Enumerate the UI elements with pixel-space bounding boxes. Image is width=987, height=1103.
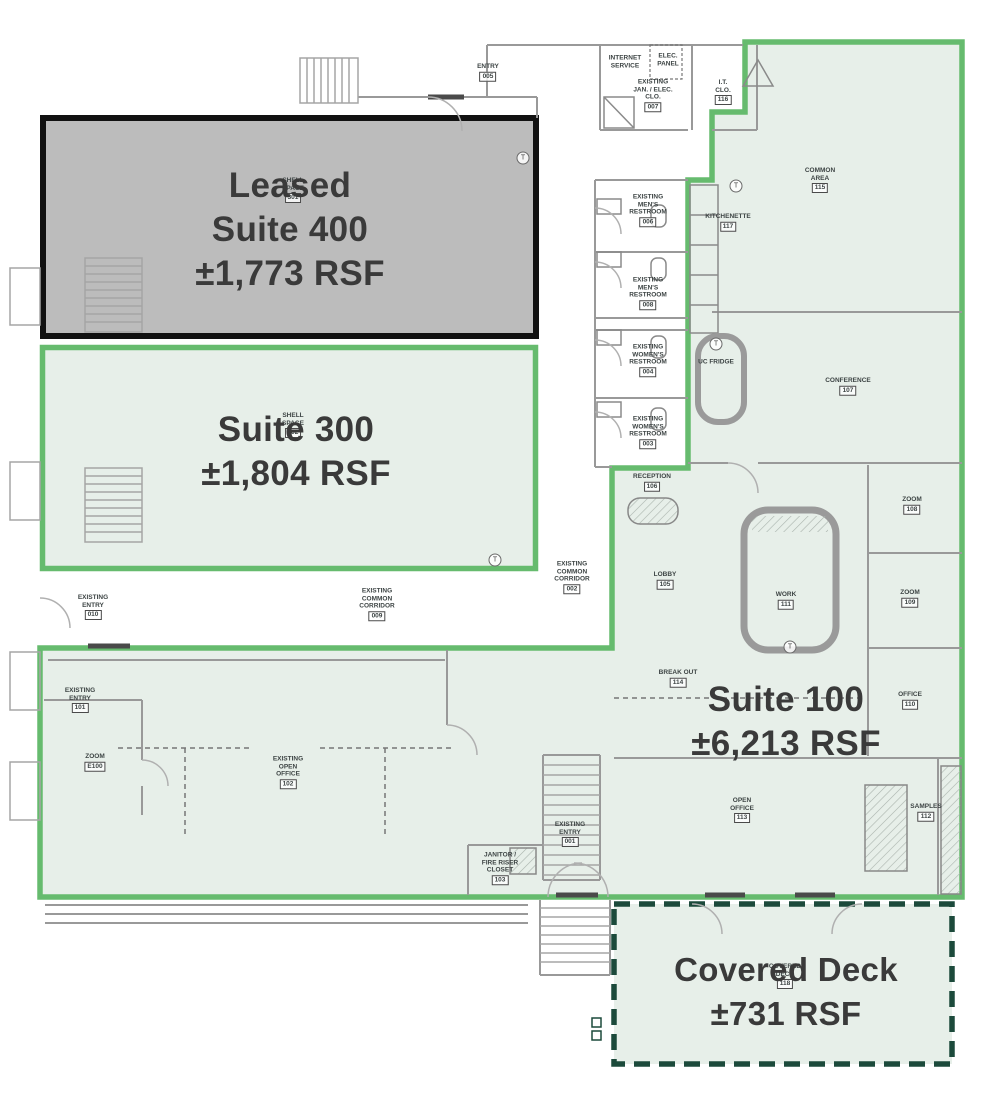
room-number: 006	[640, 217, 657, 227]
room-name: OPEN	[273, 763, 303, 771]
suite-400-status: Leased	[195, 164, 385, 208]
room-number: 002	[564, 584, 581, 594]
room-number: 115	[812, 183, 829, 193]
room-label: ZOOM109	[900, 589, 920, 608]
room-number: 005	[480, 71, 497, 81]
room-name: KITCHENETTE	[705, 213, 751, 221]
room-name: RESTROOM	[629, 358, 667, 366]
room-number: 107	[840, 385, 857, 395]
room-number: 102	[280, 779, 297, 789]
room-name: CLO.	[715, 87, 732, 95]
room-name: CORRIDOR	[554, 575, 589, 583]
room-name: ENTRY	[65, 695, 95, 703]
room-name: CLO.	[633, 93, 672, 101]
room-label: COMMONAREA115	[805, 167, 835, 193]
room-name: MEN'S	[629, 201, 667, 209]
room-name: CORRIDOR	[359, 602, 394, 610]
room-label: EXISTINGENTRY010	[78, 594, 108, 620]
suite-100-name: Suite 100	[691, 678, 881, 722]
room-name: ENTRY	[555, 829, 585, 837]
room-label: EXISTINGMEN'SRESTROOM008	[629, 276, 667, 310]
room-name: ZOOM	[902, 496, 922, 504]
room-name: CONFERENCE	[825, 377, 871, 385]
suite-100-label: Suite 100 ±6,213 RSF	[691, 678, 881, 766]
room-name: EXISTING	[629, 343, 667, 351]
room-label: ELEC.PANEL	[657, 53, 679, 68]
room-number: 114	[670, 677, 687, 687]
room-label: WORK111	[776, 591, 797, 610]
room-name: OFFICE	[898, 691, 922, 699]
room-name: I.T.	[715, 79, 732, 87]
room-name: LOBBY	[654, 571, 677, 579]
room-name: EXISTING	[554, 560, 589, 568]
room-label: CONFERENCE107	[825, 377, 871, 396]
room-label: EXISTINGOPENOFFICE102	[273, 755, 303, 789]
room-name: RESTROOM	[629, 208, 667, 216]
room-name: WOMEN'S	[629, 351, 667, 359]
room-name: WORK	[776, 591, 797, 599]
room-name: EXISTING	[555, 821, 585, 829]
room-name: COMMON	[359, 595, 394, 603]
room-number: 101	[72, 703, 89, 713]
room-number: 004	[640, 367, 657, 377]
room-name: OPEN	[730, 797, 754, 805]
room-number: 010	[85, 610, 102, 620]
room-name: EXISTING	[629, 415, 667, 423]
room-name: ZOOM	[900, 589, 920, 597]
covered-deck-label: Covered Deck ±731 RSF	[674, 948, 898, 1036]
room-number: 106	[644, 481, 661, 491]
room-number: 110	[902, 699, 919, 709]
room-label: EXISTINGCOMMONCORRIDOR009	[359, 587, 394, 621]
room-label: LOBBY105	[654, 571, 677, 590]
covered-deck-size: ±731 RSF	[674, 992, 898, 1036]
room-label: SAMPLES112	[910, 803, 941, 822]
thermostat-marker: T	[784, 641, 797, 654]
room-name: RESTROOM	[629, 430, 667, 438]
suite-300-label: Suite 300 ±1,804 RSF	[201, 408, 391, 496]
room-name: UC FRIDGE	[698, 358, 734, 366]
room-label: JANITOR /FIRE RISERCLOSET103	[482, 851, 518, 885]
room-name: JANITOR /	[482, 851, 518, 859]
suite-400-name: Suite 400	[195, 208, 385, 252]
room-number: 116	[715, 95, 732, 105]
room-labels-layer: ENTRY005INTERNETSERVICEELEC.PANELEXISTIN…	[0, 0, 987, 1103]
room-label: ENTRY005	[477, 63, 499, 82]
suite-300-name: Suite 300	[201, 408, 391, 452]
room-label: I.T.CLO.116	[715, 79, 732, 105]
suite-100-size: ±6,213 RSF	[691, 722, 881, 766]
thermostat-marker: T	[489, 554, 502, 567]
room-label: EXISTINGENTRY001	[555, 821, 585, 847]
room-name: COMMON	[554, 568, 589, 576]
room-label: INTERNETSERVICE	[609, 55, 642, 70]
room-name: COMMON	[805, 167, 835, 175]
room-number: 111	[778, 599, 794, 609]
room-name: AREA	[805, 175, 835, 183]
room-label: UC FRIDGE	[698, 358, 734, 366]
room-number: 108	[904, 504, 921, 514]
room-label: RECEPTION106	[633, 473, 671, 492]
suite-400-label: Leased Suite 400 ±1,773 RSF	[195, 164, 385, 296]
room-name: ZOOM	[84, 753, 105, 761]
room-label: OFFICE110	[898, 691, 922, 710]
room-name: FIRE RISER	[482, 859, 518, 867]
room-name: OFFICE	[730, 805, 754, 813]
room-number: 008	[640, 300, 657, 310]
room-name: OFFICE	[273, 770, 303, 778]
room-label: OPENOFFICE113	[730, 797, 754, 823]
room-name: JAN. / ELEC.	[633, 86, 672, 94]
room-name: EXISTING	[633, 78, 672, 86]
room-number: 007	[645, 102, 662, 112]
room-number: 117	[720, 221, 737, 231]
room-label: EXISTINGWOMEN'SRESTROOM004	[629, 343, 667, 377]
room-name: MEN'S	[629, 284, 667, 292]
room-name: SAMPLES	[910, 803, 941, 811]
suite-400-size: ±1,773 RSF	[195, 252, 385, 296]
room-name: BREAK OUT	[659, 669, 698, 677]
room-number: 003	[640, 439, 657, 449]
room-name: ENTRY	[78, 602, 108, 610]
room-name: CLOSET	[482, 866, 518, 874]
room-label: KITCHENETTE117	[705, 213, 751, 232]
room-number: 105	[657, 579, 674, 589]
room-number: 112	[918, 811, 935, 821]
room-number: E100	[84, 761, 105, 771]
suite-300-size: ±1,804 RSF	[201, 452, 391, 496]
room-name: SERVICE	[609, 62, 642, 70]
room-name: EXISTING	[629, 276, 667, 284]
covered-deck-name: Covered Deck	[674, 948, 898, 992]
room-label: EXISTINGWOMEN'SRESTROOM003	[629, 415, 667, 449]
room-name: EXISTING	[65, 687, 95, 695]
room-name: RECEPTION	[633, 473, 671, 481]
room-label: EXISTINGCOMMONCORRIDOR002	[554, 560, 589, 594]
thermostat-marker: T	[517, 152, 530, 165]
room-number: 113	[734, 813, 751, 823]
room-name: WOMEN'S	[629, 423, 667, 431]
room-label: EXISTINGENTRY101	[65, 687, 95, 713]
room-label: EXISTINGJAN. / ELEC.CLO.007	[633, 78, 672, 112]
room-number: 109	[902, 597, 919, 607]
floor-plan: ENTRY005INTERNETSERVICEELEC.PANELEXISTIN…	[0, 0, 987, 1103]
room-name: INTERNET	[609, 55, 642, 63]
thermostat-marker: T	[710, 338, 723, 351]
room-number: 009	[369, 611, 386, 621]
room-name: EXISTING	[78, 594, 108, 602]
room-label: ZOOME100	[84, 753, 105, 772]
room-name: PANEL	[657, 60, 679, 68]
room-name: RESTROOM	[629, 291, 667, 299]
room-name: ENTRY	[477, 63, 499, 71]
thermostat-marker: T	[730, 180, 743, 193]
room-label: ZOOM108	[902, 496, 922, 515]
room-name: EXISTING	[273, 755, 303, 763]
room-name: ELEC.	[657, 53, 679, 61]
room-label: EXISTINGMEN'SRESTROOM006	[629, 193, 667, 227]
room-number: 103	[492, 875, 509, 885]
room-number: 001	[562, 837, 579, 847]
room-name: EXISTING	[359, 587, 394, 595]
room-name: EXISTING	[629, 193, 667, 201]
